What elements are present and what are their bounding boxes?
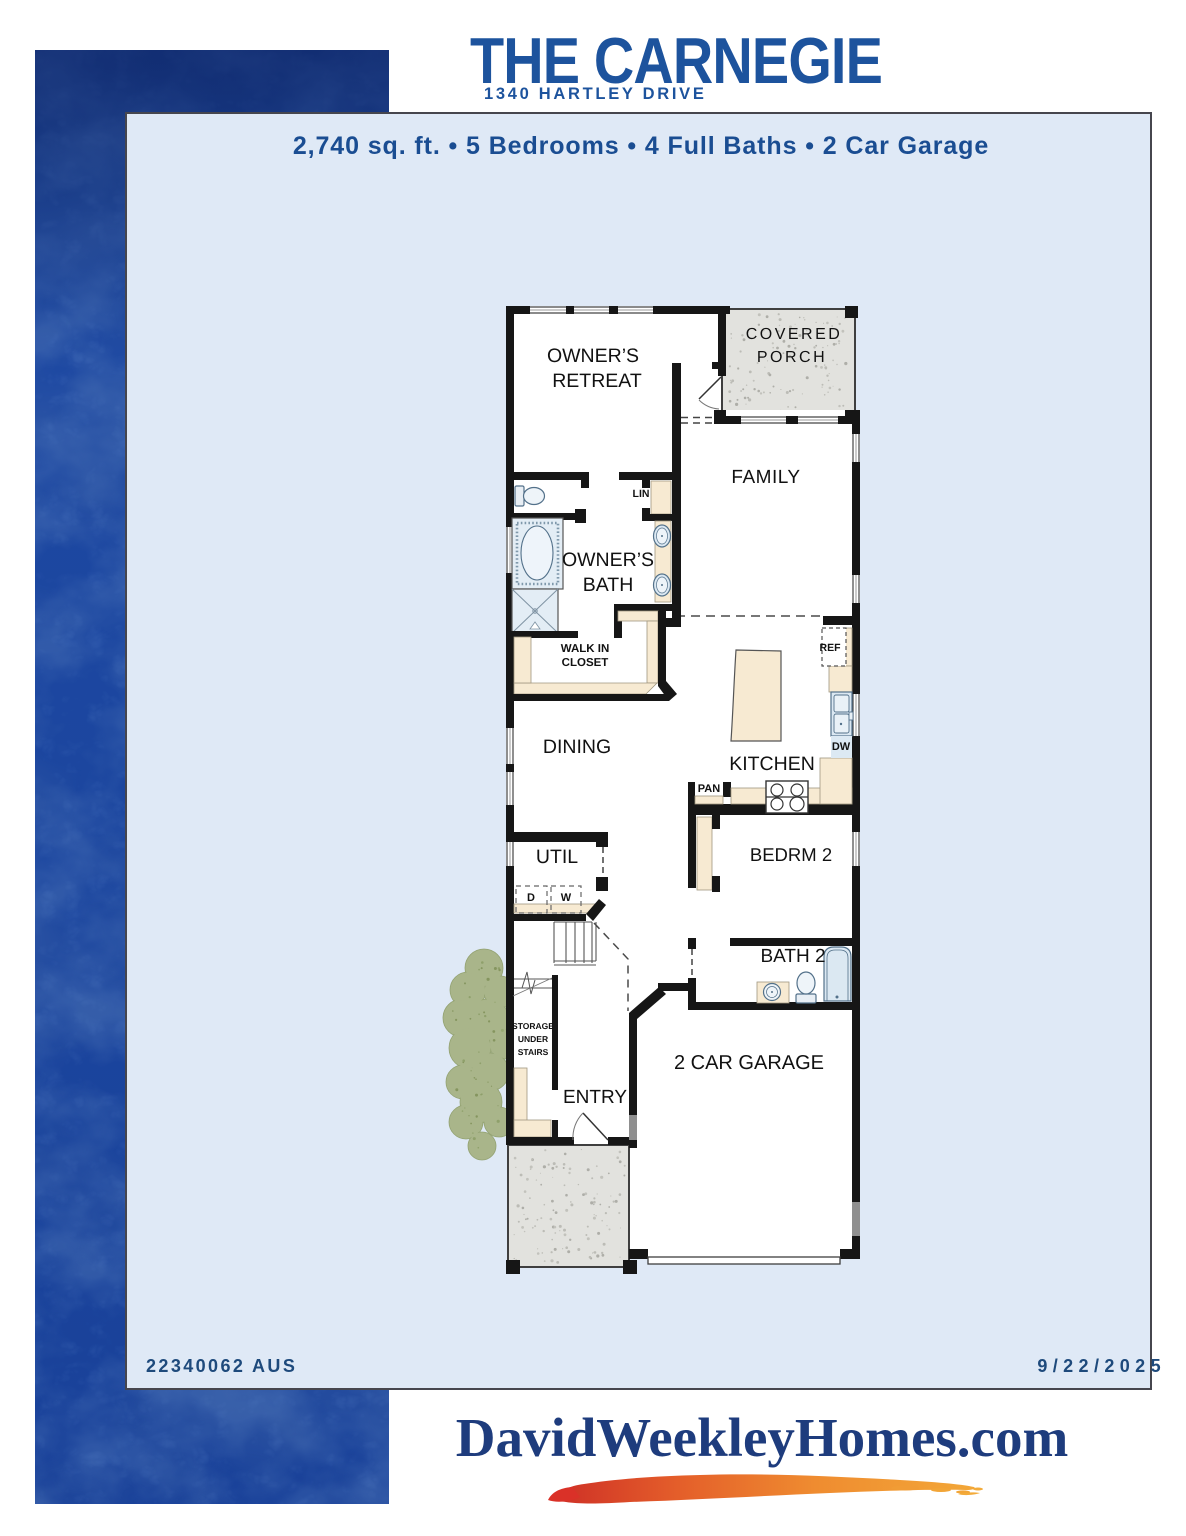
svg-text:KITCHEN: KITCHEN bbox=[729, 753, 815, 775]
svg-text:STAIRS: STAIRS bbox=[518, 1047, 549, 1057]
svg-text:BATH 2: BATH 2 bbox=[760, 946, 825, 967]
svg-text:PAN: PAN bbox=[698, 783, 720, 795]
svg-text:W: W bbox=[561, 892, 572, 904]
svg-text:OWNER’S: OWNER’S bbox=[547, 345, 639, 367]
svg-text:ENTRY: ENTRY bbox=[563, 1087, 627, 1108]
svg-text:STORAGE: STORAGE bbox=[512, 1021, 554, 1031]
svg-text:DW: DW bbox=[832, 741, 851, 753]
svg-text:UNDER: UNDER bbox=[518, 1034, 548, 1044]
svg-text:LIN: LIN bbox=[633, 488, 650, 500]
svg-text:FAMILY: FAMILY bbox=[731, 467, 800, 488]
svg-text:DINING: DINING bbox=[543, 736, 611, 758]
svg-text:PORCH: PORCH bbox=[757, 349, 827, 366]
svg-text:CLOSET: CLOSET bbox=[562, 657, 609, 669]
svg-text:D: D bbox=[527, 892, 535, 904]
svg-text:OWNER’S: OWNER’S bbox=[562, 549, 654, 571]
svg-text:COVERED: COVERED bbox=[746, 326, 843, 343]
svg-text:BEDRM 2: BEDRM 2 bbox=[750, 844, 832, 865]
svg-text:REF: REF bbox=[820, 642, 842, 654]
svg-text:BATH: BATH bbox=[583, 574, 634, 596]
svg-text:UTIL: UTIL bbox=[536, 846, 578, 868]
svg-text:WALK IN: WALK IN bbox=[561, 643, 610, 655]
svg-text:RETREAT: RETREAT bbox=[552, 370, 642, 392]
svg-text:2 CAR GARAGE: 2 CAR GARAGE bbox=[674, 1052, 824, 1074]
